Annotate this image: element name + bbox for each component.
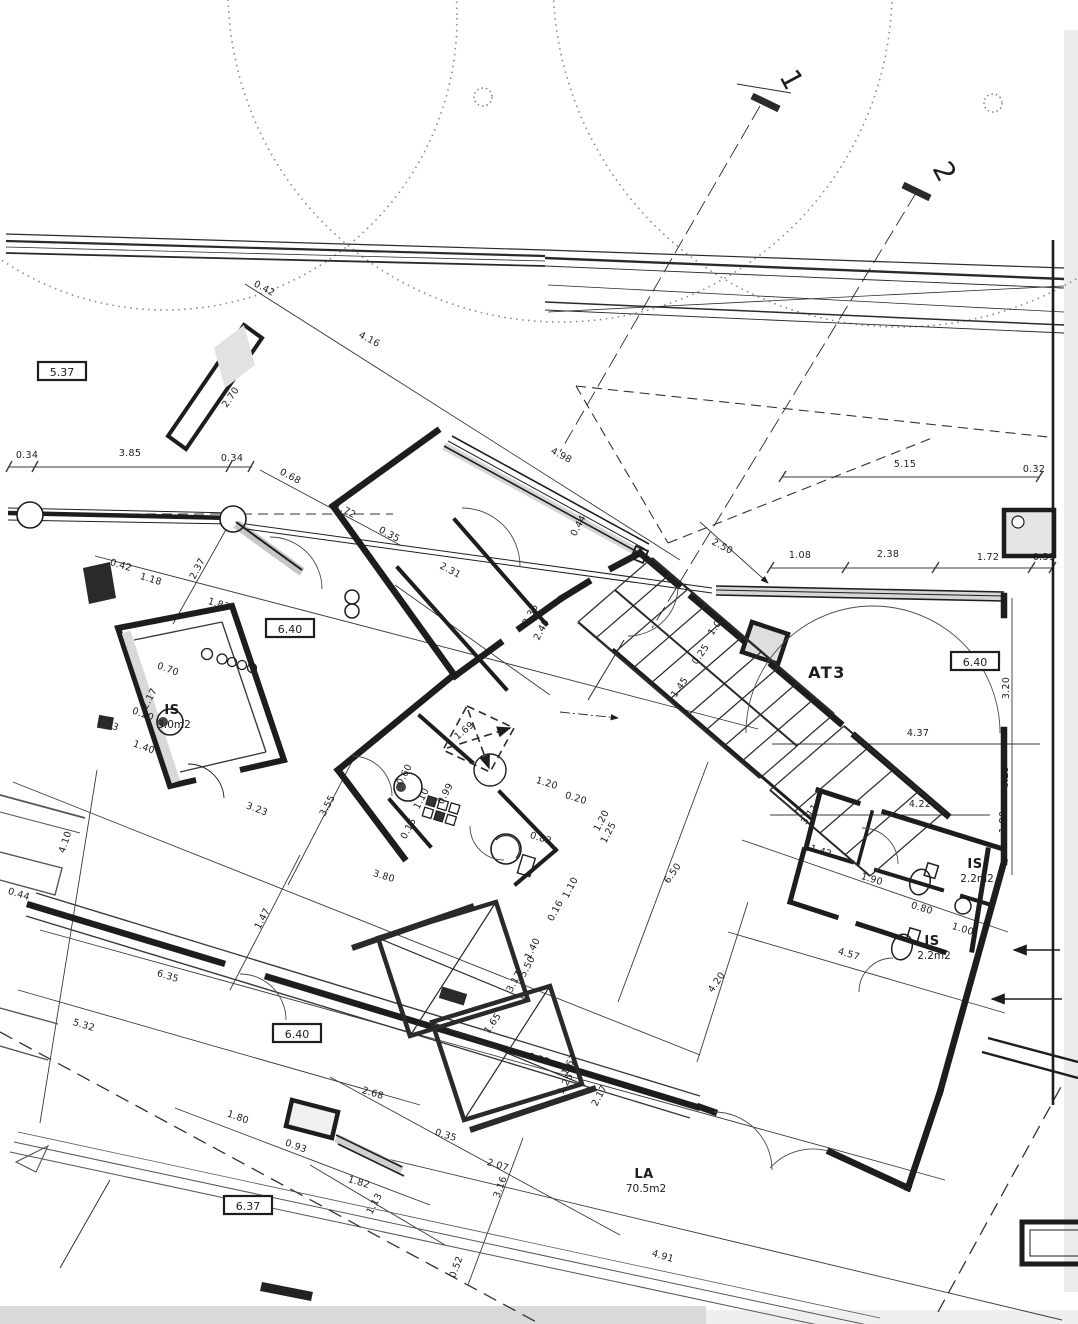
room-area: 2.2m2	[960, 873, 994, 885]
la-entrance-door	[714, 1112, 772, 1170]
dimension-label: 1.80	[998, 811, 1009, 833]
floor-plan-drawing: 0.343.850.342.700.424.164.980.681.720.35…	[0, 0, 1078, 1324]
dimension-label: 3.23	[244, 801, 269, 819]
survey-bar	[260, 1282, 313, 1301]
level-value: 6.37	[236, 1200, 261, 1213]
staircase	[560, 558, 944, 876]
room-name: IS	[967, 857, 982, 872]
columns	[83, 325, 1054, 1301]
dimension-label: 0.16	[546, 898, 566, 923]
room-label: LA70.5m2	[626, 1167, 666, 1195]
facade-inner-lines	[26, 622, 700, 1118]
room-label: IS2.2m2	[917, 934, 951, 962]
door-hinge-symbol	[345, 604, 359, 618]
dimension-label: 0.70	[155, 661, 180, 679]
dimension-label: 4.98	[549, 446, 574, 466]
dimension-label: 3.85	[119, 448, 141, 459]
dimension-label: 1.33	[95, 716, 120, 734]
small-tree-circle	[984, 94, 1002, 112]
dimension-label: 1.18	[138, 571, 163, 588]
dimension-label: 2.31	[438, 561, 463, 581]
dimension-label: 2.38	[877, 549, 899, 560]
room-label: IS2.2m2	[960, 857, 994, 885]
dimension-label: 1.08	[789, 550, 811, 561]
dimension-label: 2.50	[710, 537, 735, 557]
level-marker: 6.40	[951, 652, 999, 670]
dimension-label: 0.35	[377, 525, 402, 545]
level-marker: 5.37	[38, 362, 86, 380]
section-number-labels: 12	[773, 64, 964, 187]
room-name: LA	[634, 1167, 653, 1182]
dimension-label: 6.50	[662, 861, 684, 886]
dimension-label: 2.37	[188, 556, 208, 581]
dimension-label: 0.93	[283, 1138, 308, 1156]
at3-column	[742, 622, 788, 664]
section-number: 2	[926, 156, 964, 187]
dimension-label: 0.44	[6, 886, 31, 903]
road-band	[6, 234, 1064, 333]
dimension-labels: 0.343.850.342.700.424.164.980.681.720.35…	[6, 279, 1055, 1280]
washbasin	[955, 898, 971, 914]
dimension-label: 4.37	[907, 728, 929, 739]
level-marker: 6.37	[224, 1196, 272, 1214]
dimension-label: 1.45	[669, 675, 691, 700]
section-cut-lines	[560, 84, 930, 628]
dimension-label: 0.35	[433, 1127, 458, 1144]
entrance-arrows	[982, 950, 1078, 1078]
door-hinge-symbol	[345, 590, 359, 604]
tree-trunk-circles	[474, 88, 1002, 112]
dimension-label: 1.20	[534, 775, 559, 792]
dimension-label: 5.50	[518, 954, 538, 979]
dimension-label: 0.31	[1033, 552, 1055, 563]
level-value: 6.40	[285, 1028, 310, 1041]
dimension-label: 3.20	[1001, 677, 1012, 699]
railing-post	[17, 502, 43, 528]
room-label: AT3	[808, 663, 846, 682]
scan-artifacts	[0, 30, 1078, 1324]
small-tree-circle	[474, 88, 492, 106]
dimension-label: 2.07	[485, 1157, 510, 1174]
dimension-label: 4.57	[836, 946, 861, 963]
dimension-label: 0.52	[448, 1255, 466, 1280]
dimension-label: 0.99	[436, 781, 456, 806]
wc-bowl	[491, 834, 521, 864]
section-2-bar	[903, 185, 930, 198]
dimension-label: 4.91	[650, 1248, 675, 1265]
tree-canopy-arcs	[0, 0, 1078, 327]
dimension-lines	[6, 284, 1062, 1320]
la-entrance-door	[770, 1149, 828, 1168]
dimension-label: 6.35	[155, 968, 180, 985]
dimension-label: 1.42	[808, 843, 833, 860]
dimension-label: 2.68	[360, 1085, 385, 1102]
dimension-label: 1.10	[561, 875, 581, 900]
edge-column	[1004, 510, 1054, 556]
dimension-label: 0.42	[108, 557, 133, 574]
dimension-label: 0.34	[221, 453, 243, 464]
dimension-label: 3.55	[318, 793, 338, 818]
dimension-label: 0.82	[528, 830, 553, 847]
level-value: 5.37	[50, 366, 75, 379]
dimension-label: 4.10	[57, 830, 74, 855]
dimension-label: 0.34	[16, 450, 38, 461]
room-name: AT3	[808, 663, 846, 682]
dimension-label: 0.20	[563, 790, 588, 807]
dimension-label: 5.15	[894, 459, 916, 470]
door-arcs	[240, 508, 1000, 1170]
dimension-label: 1.47	[253, 906, 273, 931]
dimension-label: 0.32	[1023, 464, 1045, 475]
dimension-label: 1.90	[859, 871, 884, 888]
room-area: 3.0m2	[157, 719, 191, 731]
section-1-bar	[752, 96, 779, 109]
level-value: 6.40	[278, 623, 303, 636]
dimension-label: 4.22	[909, 799, 931, 810]
dimension-label: 5.32	[71, 1017, 96, 1034]
dimension-label: 3.80	[371, 868, 396, 885]
dimension-label: 4.16	[357, 330, 382, 350]
dimension-label: 1.80	[225, 1109, 250, 1127]
dimension-label: 0.68	[278, 467, 303, 487]
dimension-label: 1.13	[365, 1191, 385, 1216]
dimension-label: 0.80	[909, 900, 934, 917]
room-label: IS3.0m2	[157, 703, 191, 731]
level-marker: 6.40	[273, 1024, 321, 1042]
dimension-label: 1.25	[556, 1071, 576, 1096]
room-area: 70.5m2	[626, 1183, 666, 1195]
dimension-label: 1.72	[977, 552, 999, 563]
level-marker: 6.40	[266, 619, 314, 637]
room-name: IS	[924, 934, 939, 949]
room-name: IS	[164, 703, 179, 718]
dimension-label: 0.25	[1000, 766, 1011, 788]
dimension-label: 1.00	[950, 921, 975, 938]
floor-plan-page: 0.343.850.342.700.424.164.980.681.720.35…	[0, 0, 1078, 1324]
window-band	[444, 436, 1004, 601]
level-value: 6.40	[963, 656, 988, 669]
dimension-label: 0.60	[395, 762, 415, 787]
basement-pier	[286, 1100, 338, 1138]
room-area: 2.2m2	[917, 950, 951, 962]
wc-bowl	[474, 754, 506, 786]
